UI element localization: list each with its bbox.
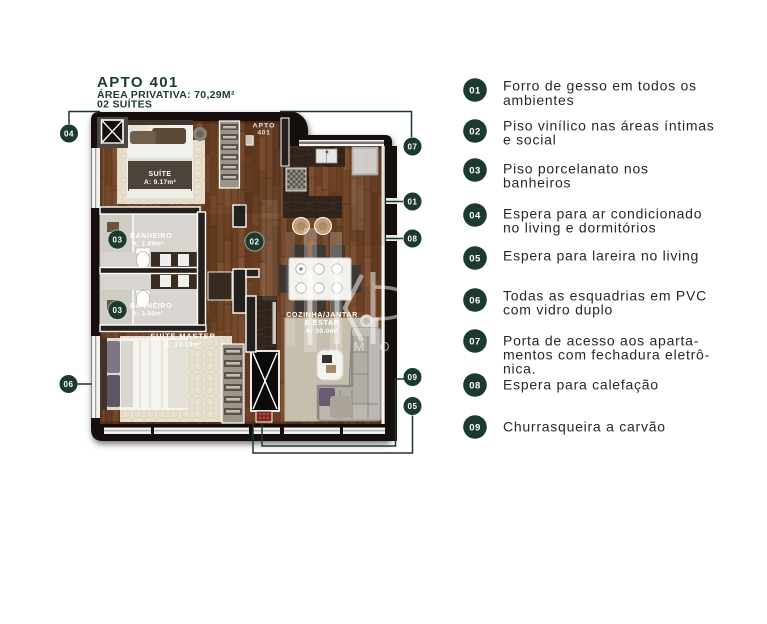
svg-text:BANHEIRO: BANHEIRO [130, 303, 172, 310]
svg-text:SUÍTE MASTER: SUÍTE MASTER [150, 332, 215, 341]
svg-text:06: 06 [469, 296, 481, 307]
svg-text:05: 05 [469, 254, 481, 265]
svg-text:Churrasqueira a carvão: Churrasqueira a carvão [503, 419, 666, 435]
svg-text:banheiros: banheiros [503, 175, 571, 191]
svg-text:07: 07 [408, 143, 418, 152]
svg-text:nica.: nica. [503, 361, 536, 377]
svg-text:A: 9.17m²: A: 9.17m² [144, 179, 176, 186]
svg-text:e social: e social [503, 132, 556, 148]
svg-text:01: 01 [469, 86, 481, 97]
svg-text:com vidro duplo: com vidro duplo [503, 302, 613, 318]
svg-text:A: 2.88m²: A: 2.88m² [132, 241, 163, 248]
svg-text:Espera para calefação: Espera para calefação [503, 377, 659, 393]
svg-text:04: 04 [64, 130, 74, 139]
svg-text:09: 09 [408, 373, 418, 382]
svg-text:03: 03 [113, 236, 123, 245]
svg-text:A: 3.06m²: A: 3.06m² [132, 311, 163, 318]
svg-text:SUÍTE: SUÍTE [148, 169, 171, 178]
svg-text:06: 06 [64, 380, 74, 389]
svg-text:05: 05 [408, 402, 418, 411]
svg-text:no living e dormitórios: no living e dormitórios [503, 220, 656, 236]
svg-text:BANHEIRO: BANHEIRO [130, 233, 172, 240]
svg-text:02: 02 [250, 238, 260, 247]
svg-text:Espera para lareira no living: Espera para lareira no living [503, 248, 699, 264]
svg-text:09: 09 [469, 423, 481, 434]
svg-text:IMOV: IMOV [335, 339, 428, 354]
svg-text:03: 03 [113, 306, 123, 315]
svg-text:02: 02 [469, 127, 481, 138]
svg-text:03: 03 [469, 166, 481, 177]
svg-text:ambientes: ambientes [503, 92, 574, 108]
svg-text:04: 04 [469, 211, 481, 222]
svg-text:08: 08 [469, 381, 481, 392]
svg-text:01: 01 [408, 198, 418, 207]
svg-text:A: 13.10m²: A: 13.10m² [164, 342, 202, 349]
svg-text:07: 07 [469, 337, 481, 348]
svg-text:02 SUÍTES: 02 SUÍTES [97, 98, 152, 111]
svg-text:08: 08 [408, 235, 418, 244]
